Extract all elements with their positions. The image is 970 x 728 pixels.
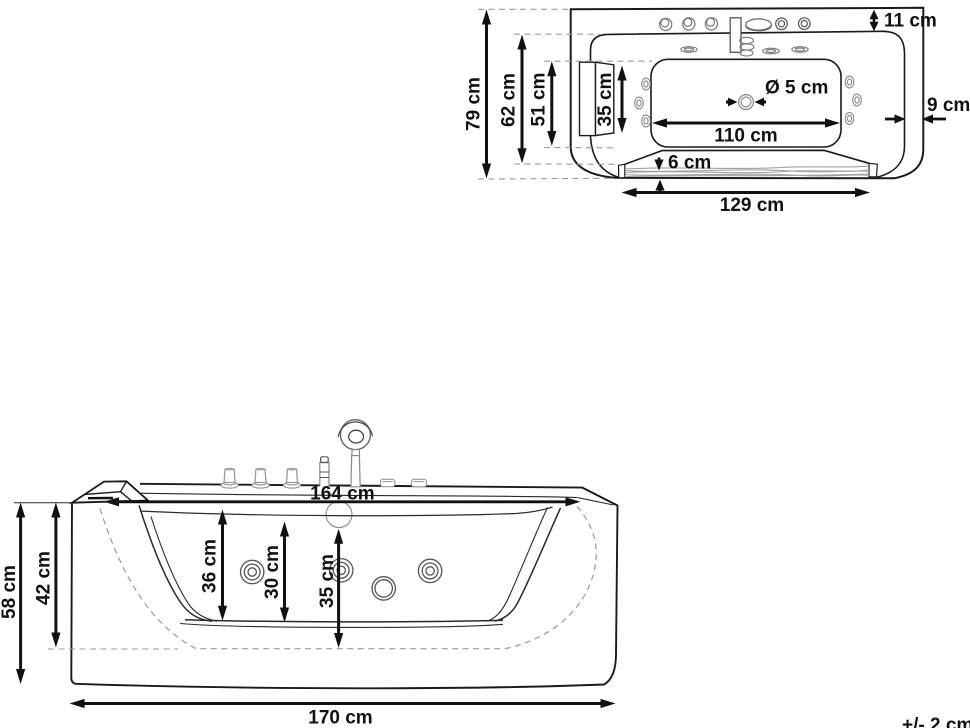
svg-text:62 cm: 62 cm bbox=[499, 73, 520, 127]
svg-text:110 cm: 110 cm bbox=[714, 126, 777, 147]
svg-text:129 cm: 129 cm bbox=[720, 195, 784, 216]
svg-text:+/- 2 cm: +/- 2 cm bbox=[902, 715, 970, 728]
svg-text:11 cm: 11 cm bbox=[884, 11, 937, 32]
svg-text:Ø 5 cm: Ø 5 cm bbox=[765, 78, 828, 99]
svg-text:164 cm: 164 cm bbox=[310, 484, 374, 505]
svg-text:36 cm: 36 cm bbox=[200, 539, 221, 593]
svg-text:42 cm: 42 cm bbox=[34, 551, 55, 605]
svg-text:35 cm: 35 cm bbox=[317, 554, 338, 608]
svg-text:51 cm: 51 cm bbox=[529, 73, 550, 127]
svg-text:30 cm: 30 cm bbox=[262, 545, 283, 599]
svg-text:170 cm: 170 cm bbox=[308, 708, 372, 728]
svg-text:6 cm: 6 cm bbox=[668, 153, 711, 174]
svg-text:35 cm: 35 cm bbox=[595, 73, 616, 127]
svg-text:9 cm: 9 cm bbox=[927, 95, 970, 116]
svg-text:79 cm: 79 cm bbox=[464, 77, 485, 131]
svg-text:58 cm: 58 cm bbox=[0, 565, 20, 619]
